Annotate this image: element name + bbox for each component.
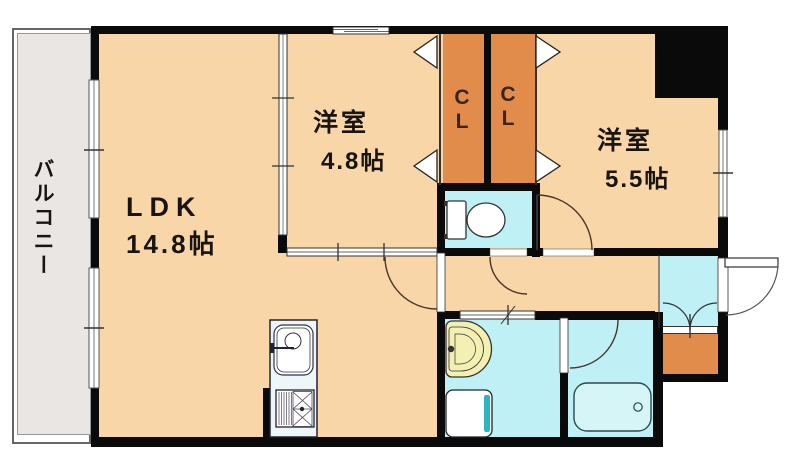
wall-closet-divider	[484, 34, 491, 185]
floorplan-canvas: バルコニー LDK 14.8帖 洋室 4.8帖 洋室 5.5帖 C L C L	[0, 0, 800, 471]
outside-notch	[663, 382, 800, 471]
wall-right-1	[718, 26, 728, 130]
bedroom-west-name: 洋室	[313, 103, 386, 139]
closet-west-letter-c: C	[450, 86, 474, 110]
closet-west-letter-l: L	[450, 110, 474, 134]
wall-wash-top-right	[535, 311, 655, 320]
front-door-jamb	[718, 258, 728, 312]
wall-kitchen-stub	[263, 388, 272, 437]
bedroom-east-size: 5.5帖	[605, 159, 670, 194]
bedroom-east-label: 洋室 5.5帖	[597, 121, 670, 194]
ldk-size: 14.8帖	[126, 224, 218, 261]
wall-ldk-hall-lower	[437, 312, 445, 437]
entry-floor	[659, 255, 718, 328]
wall-left-1	[91, 26, 99, 80]
wall-top	[91, 26, 728, 34]
wall-bath-right	[653, 312, 663, 443]
toilet-floor	[445, 191, 532, 248]
wall-left-2	[91, 218, 99, 268]
pillar-column	[655, 34, 719, 98]
wall-hall-top-a	[445, 248, 490, 256]
ldk-label: LDK 14.8帖	[126, 192, 218, 261]
closet-west-label: C L	[450, 86, 474, 134]
wall-toilet-left	[437, 183, 445, 257]
wall-bath-divider	[560, 373, 568, 443]
front-door-icon	[725, 258, 778, 315]
wall-hall-top-c	[594, 248, 718, 256]
bedroom-east-name: 洋室	[597, 121, 670, 157]
wall-right-2	[718, 217, 728, 258]
entry-closet-frame	[661, 326, 718, 334]
wall-partition-post	[278, 235, 287, 253]
closet-east-label: C L	[496, 83, 520, 131]
wall-wash-top-left	[437, 311, 460, 319]
bedroom-west-label: 洋室 4.8帖	[313, 103, 386, 176]
bathroom-floor	[568, 320, 653, 437]
closet-east-letter-l: L	[496, 107, 520, 131]
wall-bottom	[91, 437, 663, 447]
closet-east-letter-c: C	[496, 83, 520, 107]
wall-hall-top-b	[527, 248, 543, 256]
entry-closet-area	[662, 334, 718, 374]
bedroom-west-size: 4.8帖	[321, 141, 386, 176]
wall-bottom-right	[655, 374, 728, 382]
wall-right-3	[718, 312, 728, 382]
wall-toilet-right	[532, 183, 540, 257]
ldk-name: LDK	[126, 192, 218, 223]
washroom-floor	[445, 319, 560, 437]
balcony-label: バルコニー	[27, 158, 57, 278]
